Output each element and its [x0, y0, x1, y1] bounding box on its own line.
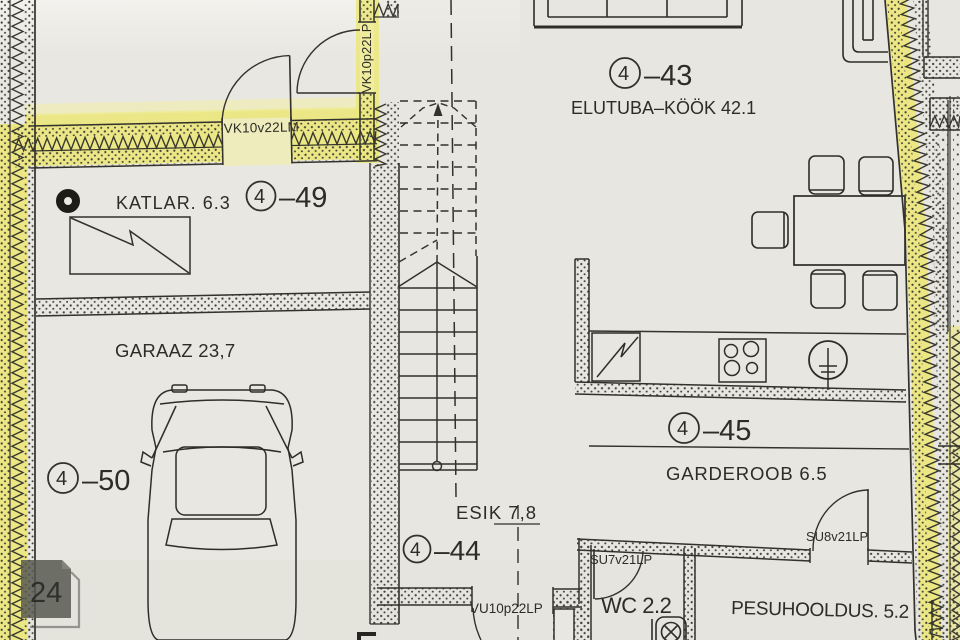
svg-text:4: 4 [618, 63, 629, 85]
svg-text:SU7v21LP: SU7v21LP [590, 552, 652, 567]
svg-text:VU10p22LP: VU10p22LP [470, 601, 543, 616]
svg-text:–50: –50 [82, 465, 130, 497]
svg-text:4: 4 [677, 418, 688, 440]
svg-text:4: 4 [56, 468, 67, 490]
svg-text:ELUTUBA–KÖÖK 42.1: ELUTUBA–KÖÖK 42.1 [571, 98, 756, 118]
svg-text:–43: –43 [644, 60, 692, 92]
svg-text:24: 24 [30, 577, 62, 609]
svg-text:VK10v22LM: VK10v22LM [224, 119, 300, 136]
svg-text:PESUHOOLDUS. 5.2: PESUHOOLDUS. 5.2 [731, 598, 909, 623]
svg-text:4: 4 [254, 186, 265, 208]
svg-text:4: 4 [410, 540, 421, 561]
svg-text:SU8v21LP: SU8v21LP [806, 529, 868, 544]
svg-text:WC 2.2: WC 2.2 [601, 593, 672, 618]
svg-text:ESIK 7,8: ESIK 7,8 [456, 502, 537, 523]
svg-text:–45: –45 [703, 415, 751, 447]
svg-text:VK10p22LP: VK10p22LP [359, 24, 374, 93]
svg-text:–44: –44 [434, 535, 481, 566]
svg-text:GARDEROOB 6.5: GARDEROOB 6.5 [666, 463, 828, 484]
svg-text:KATLAR. 6.3: KATLAR. 6.3 [116, 193, 231, 213]
svg-text:GARAAZ 23,7: GARAAZ 23,7 [115, 340, 236, 361]
svg-text:–49: –49 [279, 182, 327, 214]
